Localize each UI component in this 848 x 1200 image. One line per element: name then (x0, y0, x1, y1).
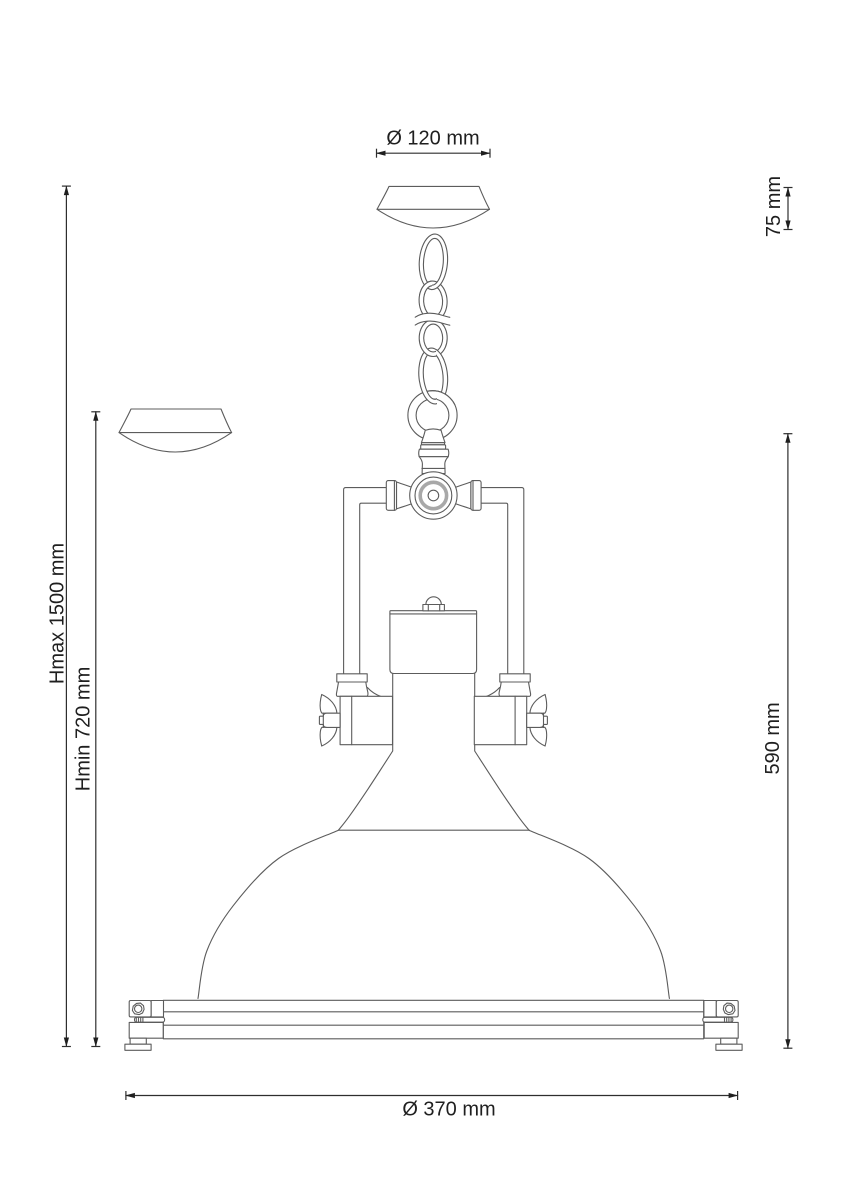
svg-text:Hmax 1500 mm: Hmax 1500 mm (47, 543, 69, 684)
svg-text:Ø 120 mm: Ø 120 mm (386, 128, 479, 150)
svg-text:75 mm: 75 mm (763, 176, 785, 237)
svg-text:Ø 370 mm: Ø 370 mm (402, 1099, 495, 1121)
svg-text:Hmin 720 mm: Hmin 720 mm (73, 667, 95, 791)
svg-text:590 mm: 590 mm (762, 702, 784, 774)
